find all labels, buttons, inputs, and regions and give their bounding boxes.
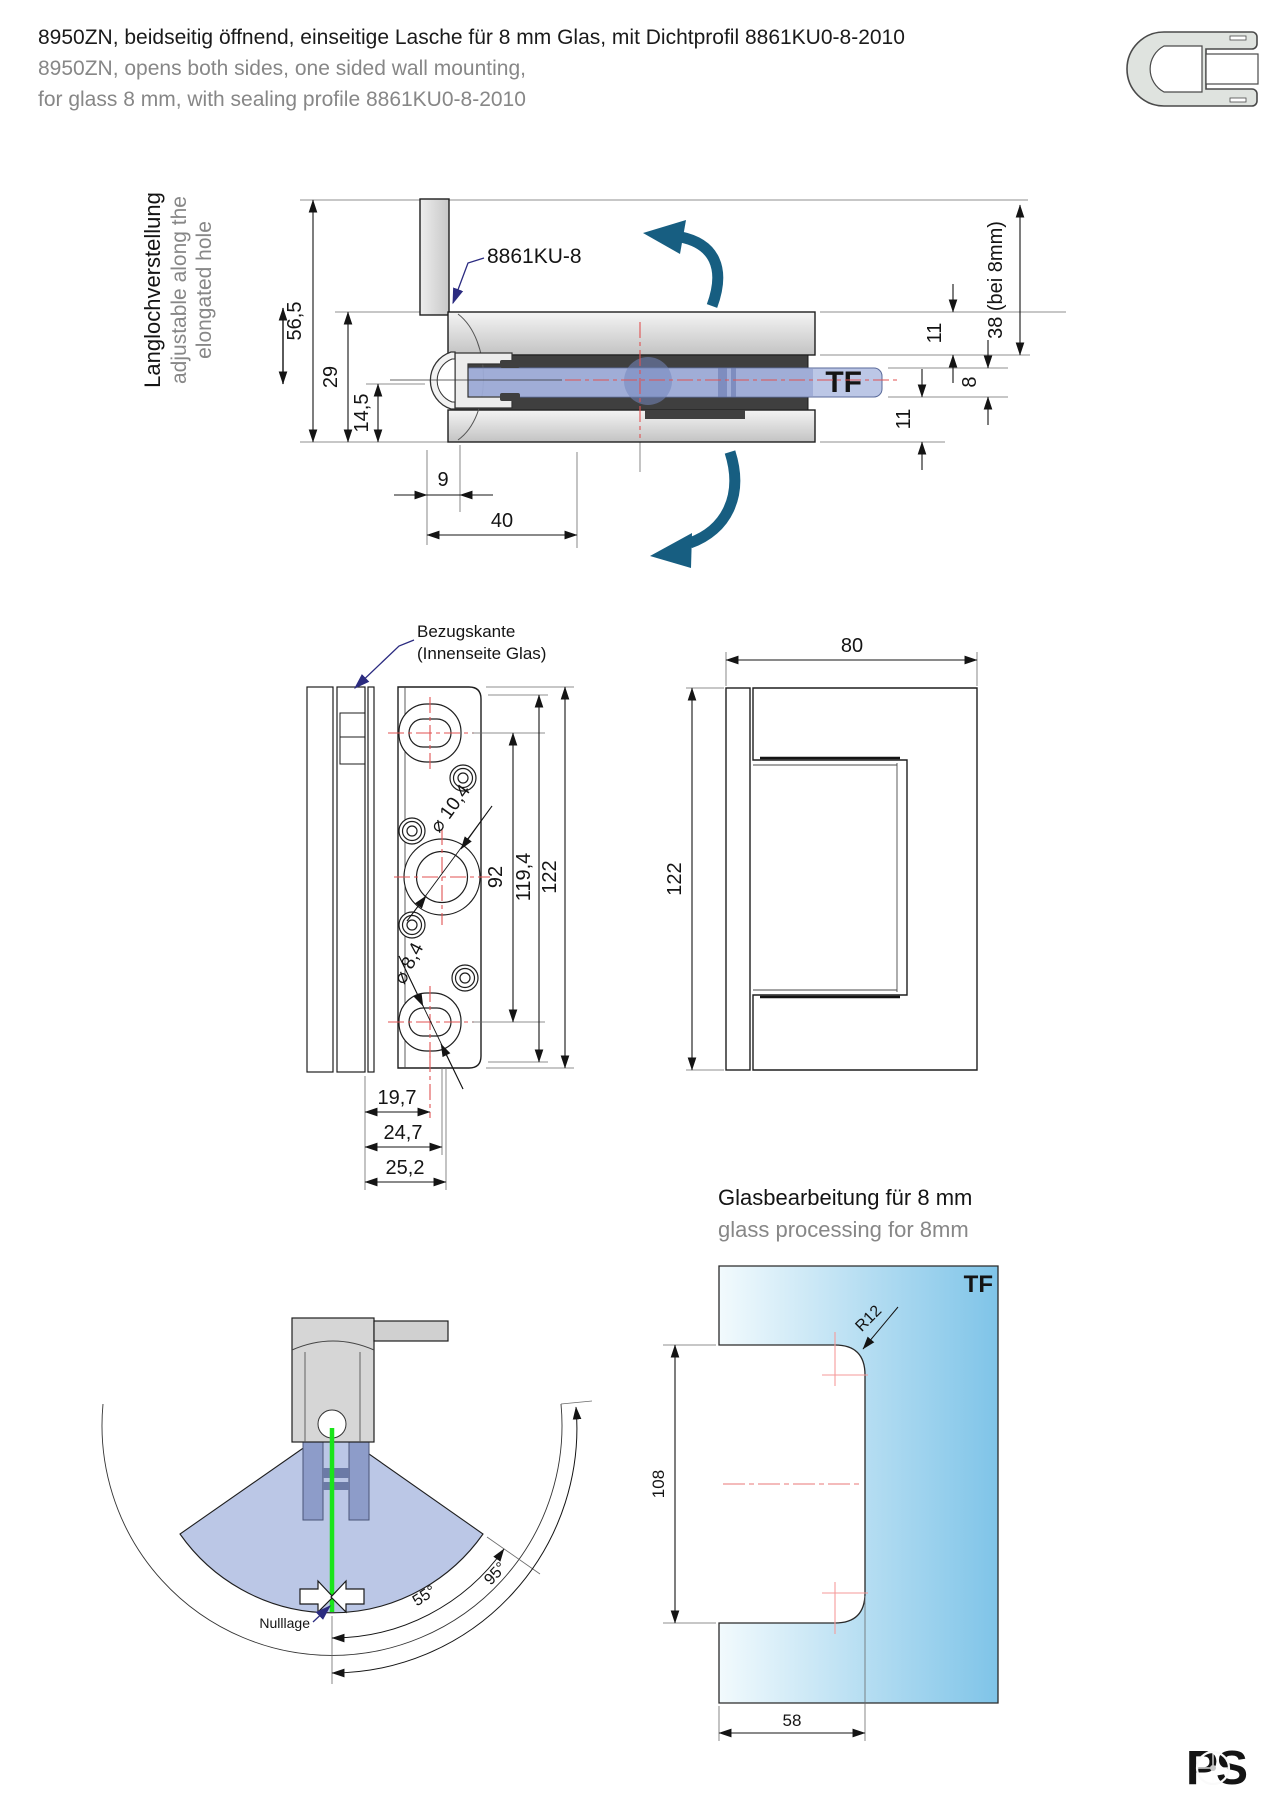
front-view-dims-bottom: 19,7 24,7 25,2	[365, 1087, 446, 1182]
elongated-hole-note: Langlochverstellung adjustable along the…	[140, 192, 283, 388]
dim-38-overall: 38 (bei 8mm)	[985, 221, 1007, 339]
dim-11-bottom: 11	[893, 409, 915, 430]
end-view: 80 122	[664, 635, 977, 1070]
glass-panel-tf-label: TF	[964, 1271, 993, 1298]
screw-boss	[624, 357, 672, 405]
dim-122-end: 122	[664, 862, 686, 895]
dim-29: 29	[320, 366, 342, 388]
dim-108: 108	[649, 1470, 668, 1498]
wall-arm	[374, 1321, 448, 1341]
dim-92: 92	[485, 866, 507, 888]
front-view: Bezugskante (Innenseite Glas) ⌀ 10,4 ⌀ 8…	[307, 622, 574, 1190]
seal-leader-arrow	[453, 258, 484, 303]
swing-angle-view: 55° 95° Nulllage	[102, 1318, 592, 1684]
glass-heading-german: Glasbearbeitung für 8 mm	[718, 1185, 972, 1210]
side-view-dims-left: 56,5 29 14,5	[284, 200, 378, 442]
note-english-1: adjustable along the	[168, 196, 191, 384]
seal-profile-label: 8861KU-8	[487, 245, 582, 268]
side-view-dims-bottom: 9 40	[394, 469, 577, 535]
dim-14-5: 14,5	[351, 394, 373, 433]
wall-plate	[420, 199, 449, 315]
glass-processing-view: Glasbearbeitung für 8 mm glass processin…	[649, 1185, 998, 1741]
gasket-step	[645, 410, 745, 419]
note-german: Langlochverstellung	[140, 192, 165, 388]
ref-edge-leader	[355, 640, 414, 688]
dim-24-7: 24,7	[384, 1122, 423, 1144]
ref-edge-label-1: Bezugskante	[417, 622, 515, 641]
dim-25-2: 25,2	[386, 1157, 425, 1179]
brand-logo: PS	[1186, 1742, 1247, 1795]
wall-lasche-edge	[307, 687, 374, 1072]
dim-19-7: 19,7	[378, 1087, 417, 1109]
dim-11-top: 11	[924, 323, 946, 344]
side-section-view: Langlochverstellung adjustable along the…	[140, 192, 1066, 568]
note-english-2: elongated hole	[193, 221, 216, 359]
dim-80: 80	[841, 635, 863, 657]
end-view-lasche	[726, 688, 750, 1070]
front-view-dims-right: 92 119,4 122	[485, 687, 565, 1068]
dim-58: 58	[783, 1711, 802, 1730]
hinge-clamp-top	[448, 312, 815, 355]
end-view-inner-lines	[753, 763, 897, 992]
dim-8-glass: 8	[959, 376, 981, 387]
end-view-body	[753, 688, 977, 1070]
dim-122: 122	[539, 860, 561, 893]
dim-9: 9	[437, 469, 448, 491]
zero-position-label: Nulllage	[259, 1615, 310, 1631]
glass-centerlines	[723, 1332, 868, 1634]
open-arrow-top	[681, 237, 718, 306]
technical-drawing: Langlochverstellung adjustable along the…	[0, 0, 1273, 1800]
swing-hinge-body	[292, 1318, 448, 1442]
glass-heading-english: glass processing for 8mm	[718, 1217, 969, 1242]
ref-edge-label-2: (Innenseite Glas)	[417, 644, 546, 663]
dim-119-4: 119,4	[513, 853, 535, 902]
hinge-clamp-bottom	[448, 410, 815, 442]
seal-profile-icon	[1127, 32, 1258, 106]
open-arrow-bottom	[690, 452, 735, 543]
side-view-dims-right: 11 8 11 38 (bei 8mm)	[893, 205, 1020, 470]
glass-tf-label: TF	[825, 366, 862, 399]
datasheet-page: 8950ZN, beidseitig öffnend, einseitige L…	[0, 0, 1273, 1800]
angle-95-label: 95°	[481, 1559, 510, 1588]
dim-56-5: 56,5	[284, 302, 306, 341]
dim-40: 40	[491, 510, 513, 532]
